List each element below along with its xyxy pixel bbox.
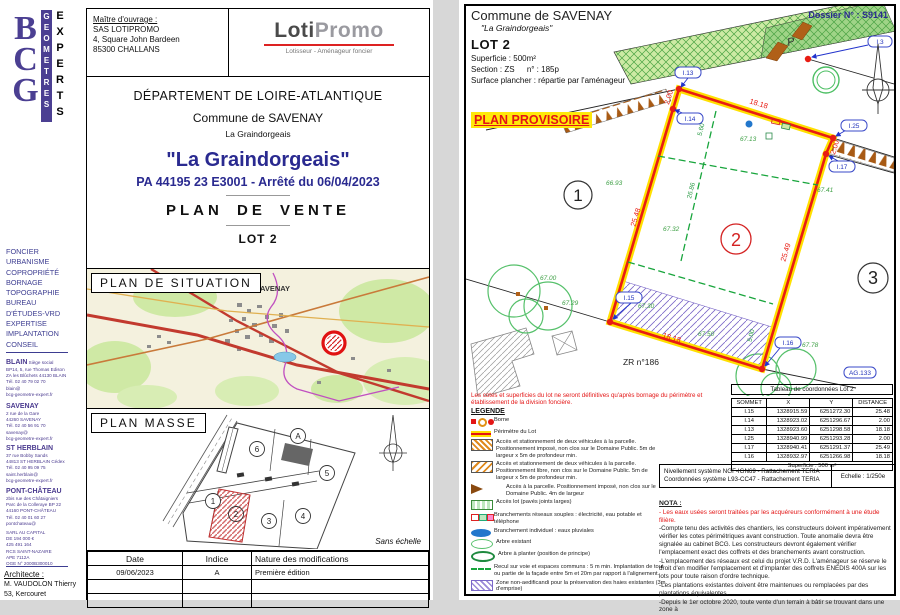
lotipromo-underline (264, 44, 394, 46)
svg-text:I.15: I.15 (624, 295, 635, 302)
plan-masse-section: PLAN MASSE (87, 409, 429, 551)
legend-item: Arbre à planter (position de principe) (498, 551, 590, 562)
client-line: SAS LOTIPROMO (93, 25, 224, 35)
commune-title: Commune de SAVENAY (87, 111, 429, 125)
architect-label: Architecte : (4, 570, 76, 580)
svg-text:AG.133: AG.133 (849, 370, 871, 377)
non-aedificandi-icon (471, 580, 493, 591)
architect-name: M. VAUDOLON Thierry (4, 580, 76, 590)
nota-line: -Compte tenu des activités des chantiers… (659, 525, 893, 556)
legend: LEGENDE Borne Périmètre du Lot Accès et … (471, 408, 667, 595)
divider (6, 352, 68, 353)
service-item: D'ÉTUDES-VRD (6, 309, 60, 319)
svg-text:A: A (295, 432, 301, 441)
legend-item: Zone non-aedificandi pour la préservatio… (496, 580, 667, 594)
service-item: BUREAU (6, 298, 60, 308)
commune-label: Commune de SAVENAY (471, 8, 625, 23)
georeference-block: Nivellement système NGF-IGN69 - Rattache… (659, 464, 895, 488)
divider (226, 195, 290, 196)
parking-free-icon (471, 461, 493, 473)
title-block-header: Maître d'ouvrage : SAS LOTIPROMO 4, Squa… (87, 9, 429, 77)
lotipromo-part1: Loti (274, 19, 314, 42)
svg-text:5: 5 (325, 469, 330, 478)
col-header-indice: Indice (183, 552, 252, 566)
sidebar: BCG GEOMETRES EXPERTS FONCIER URBANISME … (0, 0, 86, 600)
lot3-number: 3 (868, 268, 878, 288)
col-sommet: SOMMET (732, 399, 767, 408)
access-arrow-icon (471, 484, 503, 494)
left-page: BCG GEOMETRES EXPERTS FONCIER URBANISME … (0, 0, 433, 600)
svg-text:I.25: I.25 (849, 123, 860, 130)
office-st-herblain: ST HERBLAIN 37 rue Bobby Sands 44813 ST … (6, 444, 65, 484)
borne-icon (471, 417, 491, 427)
architect-address: 53, Kercouret (4, 590, 76, 600)
col-y: Y (810, 399, 853, 408)
setback-line-icon (471, 568, 491, 570)
svg-text:I.13: I.13 (683, 70, 694, 77)
svg-text:67.32: 67.32 (663, 226, 680, 233)
provisional-stamp: PLAN PROVISOIRE (471, 112, 592, 128)
modifications-table: Date Indice Nature des modifications 09/… (87, 551, 429, 608)
section-label: Section : ZS (471, 65, 515, 74)
office-line: 44160 PONT-CHÂTEAU (6, 508, 62, 514)
rainwater-icon (471, 529, 491, 537)
geometres-label: GEOMETRES (41, 10, 52, 122)
service-item: URBANISME (6, 257, 60, 267)
svg-text:67.29: 67.29 (562, 300, 579, 307)
legend-title: LEGENDE (471, 408, 667, 415)
plan-masse-label: PLAN MASSE (91, 413, 206, 433)
surface-label: Surface plancher : répartie par l'aménag… (471, 76, 625, 85)
nota-block: NOTA : - Les eaux usées seront traitées … (659, 500, 893, 615)
col-x: X (767, 399, 810, 408)
legend-item: Accès et stationnement de deux véhicules… (496, 439, 667, 459)
parcel-label: ZR n°186 (623, 357, 659, 367)
bcg-logo: BCG GEOMETRES EXPERTS (10, 10, 66, 122)
service-item: CONSEIL (6, 340, 60, 350)
lieu-title: La Graindorgeais (87, 129, 429, 139)
col-header-date: Date (88, 552, 183, 566)
service-item: TOPOGRAPHIE (6, 288, 60, 298)
services-list: FONCIER URBANISME COPROPRIÉTÉ BORNAGE TO… (6, 247, 60, 350)
table-row: 09/06/2023 A Première édition (88, 566, 429, 580)
cell-indice: A (183, 566, 252, 580)
svg-text:I.14: I.14 (685, 116, 696, 123)
paving-icon (471, 500, 493, 510)
cell-date: 09/06/2023 (88, 566, 183, 580)
office-line: bcg-geometre-expert.fr (6, 392, 66, 398)
lotipromo-part2: Promo (315, 19, 384, 42)
legend-item: Branchement individuel : eaux pluviales (494, 528, 594, 537)
plan-situation-section: PLAN DE SITUATION (87, 269, 429, 409)
project-title: "La Graindorgeais" (87, 149, 429, 172)
service-item: COPROPRIÉTÉ (6, 268, 60, 278)
nota-title: NOTA : (659, 500, 893, 508)
lot2-number: 2 (731, 230, 741, 250)
lotipromo-tagline: Lotisseur - Aménageur foncier (229, 48, 429, 55)
svg-text:6: 6 (255, 445, 260, 454)
nota-line: -L'emplacement des réseaux est celui du … (659, 558, 893, 581)
service-item: FONCIER (6, 247, 60, 257)
scale-note: Sans échelle (375, 537, 421, 546)
rainwater-connection-icon (746, 121, 753, 128)
legend-item: Branchements réseaux souples : électrici… (494, 512, 667, 526)
svg-text:67.13: 67.13 (740, 136, 757, 143)
office-tag: Siège social (29, 360, 54, 365)
svg-text:1: 1 (211, 497, 216, 506)
legend-item: Recul sur voie et espaces communs : 5 m … (494, 564, 667, 578)
experts-label: EXPERTS (54, 10, 66, 122)
client-line: 85300 CHALLANS (93, 45, 224, 55)
title-section: DÉPARTEMENT DE LOIRE-ATLANTIQUE Commune … (87, 89, 429, 269)
right-page: 18.18 25.48 25.49 18.18 2.00 2.00 5.60 2… (459, 0, 900, 600)
legend-item: Borne (494, 417, 509, 427)
superficie-label: Superficie : 500m² (471, 54, 625, 63)
svg-text:2: 2 (234, 510, 239, 519)
coord-row: I.161328932.976251266.9818.18 (732, 453, 893, 462)
lotipromo-logo: LotiPromo Lotisseur - Aménageur foncier (229, 9, 429, 76)
office-savenay: SAVENAY 2 rue de la Gare 44260 SAVENAY T… (6, 402, 53, 442)
company-info: SARL AU CAPITAL DE 194 000 € 425 491 164… (6, 530, 53, 567)
office-blain: BLAIN Siège social BP14, 5, rue Thomas E… (6, 358, 66, 398)
client-label: Maître d'ouvrage : (93, 15, 224, 25)
office-name: PONT-CHÂTEAU (6, 487, 62, 496)
company-line: RCS SAINT-NAZAIRE (6, 549, 53, 555)
office-line: bcg-geometre-expert.fr (6, 478, 65, 484)
service-item: EXPERTISE (6, 319, 60, 329)
bcg-letters: BCG (10, 10, 40, 122)
utility-box-icon (766, 133, 772, 139)
office-name: ST HERBLAIN (6, 444, 65, 453)
dossier-number: Dossier N° : S9141 (808, 10, 888, 20)
lot-title: LOT 2 (87, 232, 429, 246)
coord-table-title: Tableau de coordonnées Lot 2 (731, 384, 893, 395)
warning-text: Les cotes et superficies du lot ne seron… (471, 392, 731, 407)
existing-building (471, 328, 534, 396)
office-name: SAVENAY (6, 402, 53, 411)
coord-table: SOMMET X Y DISTANCE I.151328915.59625127… (731, 398, 893, 471)
svg-text:67.50: 67.50 (698, 331, 715, 338)
architect-block: Architecte : M. VAUDOLON Thierry 53, Ker… (4, 570, 76, 600)
svg-text:3: 3 (267, 517, 272, 526)
legend-item: Accès à la parcelle. Positionnement impo… (506, 484, 667, 498)
existing-tree-icon (471, 539, 493, 549)
client-block: Maître d'ouvrage : SAS LOTIPROMO 4, Squa… (87, 9, 229, 76)
svg-text:67.41: 67.41 (817, 187, 834, 194)
permit-title: PA 44195 23 E3001 - Arrêté du 06/04/2023 (87, 175, 429, 189)
plan-situation-label: PLAN DE SITUATION (91, 273, 261, 293)
plan-de-vente-title: PLAN DE VENTE (87, 202, 429, 219)
service-item: IMPLANTATION (6, 329, 60, 339)
north-arrow-icon (862, 44, 894, 114)
office-name: BLAIN (6, 359, 27, 366)
north-arrow-icon (379, 415, 407, 471)
office-line: bcg-geometre-expert.fr (6, 436, 53, 442)
legend-item: Accès et stationnement de deux véhicules… (496, 461, 667, 481)
col-distance: DISTANCE (853, 399, 893, 408)
modifications-section: Date Indice Nature des modifications 09/… (87, 551, 429, 611)
coord-row: I.141328923.026251296.672.00 (732, 417, 893, 426)
network-boxes-icon (471, 512, 491, 522)
legend-item: Périmètre du Lot (494, 429, 536, 437)
legend-item: Accès lot (pavés joints larges) (496, 499, 572, 510)
svg-text:25.49: 25.49 (779, 242, 793, 263)
levelling-system: Nivellement système NGF-IGN69 - Rattache… (664, 468, 827, 476)
svg-text:66.93: 66.93 (606, 180, 623, 187)
svg-text:67.00: 67.00 (540, 275, 557, 282)
coord-row: I.131328923.606251298.5818.18 (732, 426, 893, 435)
parking-imposed-icon (471, 439, 493, 451)
col-header-nature: Nature des modifications (252, 552, 429, 566)
svg-text:67.30: 67.30 (638, 303, 655, 310)
planted-tree-icon (471, 551, 495, 562)
coord-row: I.151328915.596251272.3025.48 (732, 408, 893, 417)
nota-line: -Les plantations existantes doivent être… (659, 582, 893, 598)
lot-label: LOT 2 (471, 37, 625, 52)
svg-text:4: 4 (301, 512, 306, 521)
svg-text:67.78: 67.78 (802, 342, 819, 349)
client-line: 4, Square John Bardeen (93, 35, 224, 45)
nota-line: -Depuis le 1er octobre 2020, toute vente… (659, 599, 893, 615)
svg-text:I.17: I.17 (837, 164, 848, 171)
coordinate-system: Coordonnées système L93-CC47 - Rattachem… (664, 476, 827, 484)
coordinates-block: Tableau de coordonnées Lot 2 SOMMET X Y … (731, 384, 893, 471)
table-row (88, 580, 429, 594)
office-line: pontchateau@ (6, 521, 62, 527)
right-header: Commune de SAVENAY "La Graindorgeais" LO… (471, 8, 625, 85)
legend-item: Arbre existant (496, 539, 531, 549)
section-number: n° : 185p (527, 65, 559, 74)
coord-row: I.171328940.416251291.3725.49 (732, 444, 893, 453)
perimeter-icon (471, 431, 491, 437)
svg-text:I.16: I.16 (783, 340, 794, 347)
nota-red-line: - Les eaux usées seront traitées par les… (659, 509, 893, 525)
utility-box-icon (781, 123, 790, 130)
table-row (88, 594, 429, 608)
scale-label: Echelle : 1/250e (832, 465, 894, 487)
divider (6, 566, 68, 567)
departement-title: DÉPARTEMENT DE LOIRE-ATLANTIQUE (87, 89, 429, 103)
office-pont-chateau: PONT-CHÂTEAU 2bis rue des Châtaigniers P… (6, 487, 62, 527)
left-page-frame: Maître d'ouvrage : SAS LOTIPROMO 4, Squa… (86, 8, 430, 600)
cell-nature: Première édition (252, 566, 429, 580)
coord-row: I.251328940.996251293.282.00 (732, 435, 893, 444)
lot1-number: 1 (573, 186, 582, 205)
project-sub-label: "La Graindorgeais" (481, 23, 625, 33)
service-item: BORNAGE (6, 278, 60, 288)
divider (226, 225, 290, 226)
